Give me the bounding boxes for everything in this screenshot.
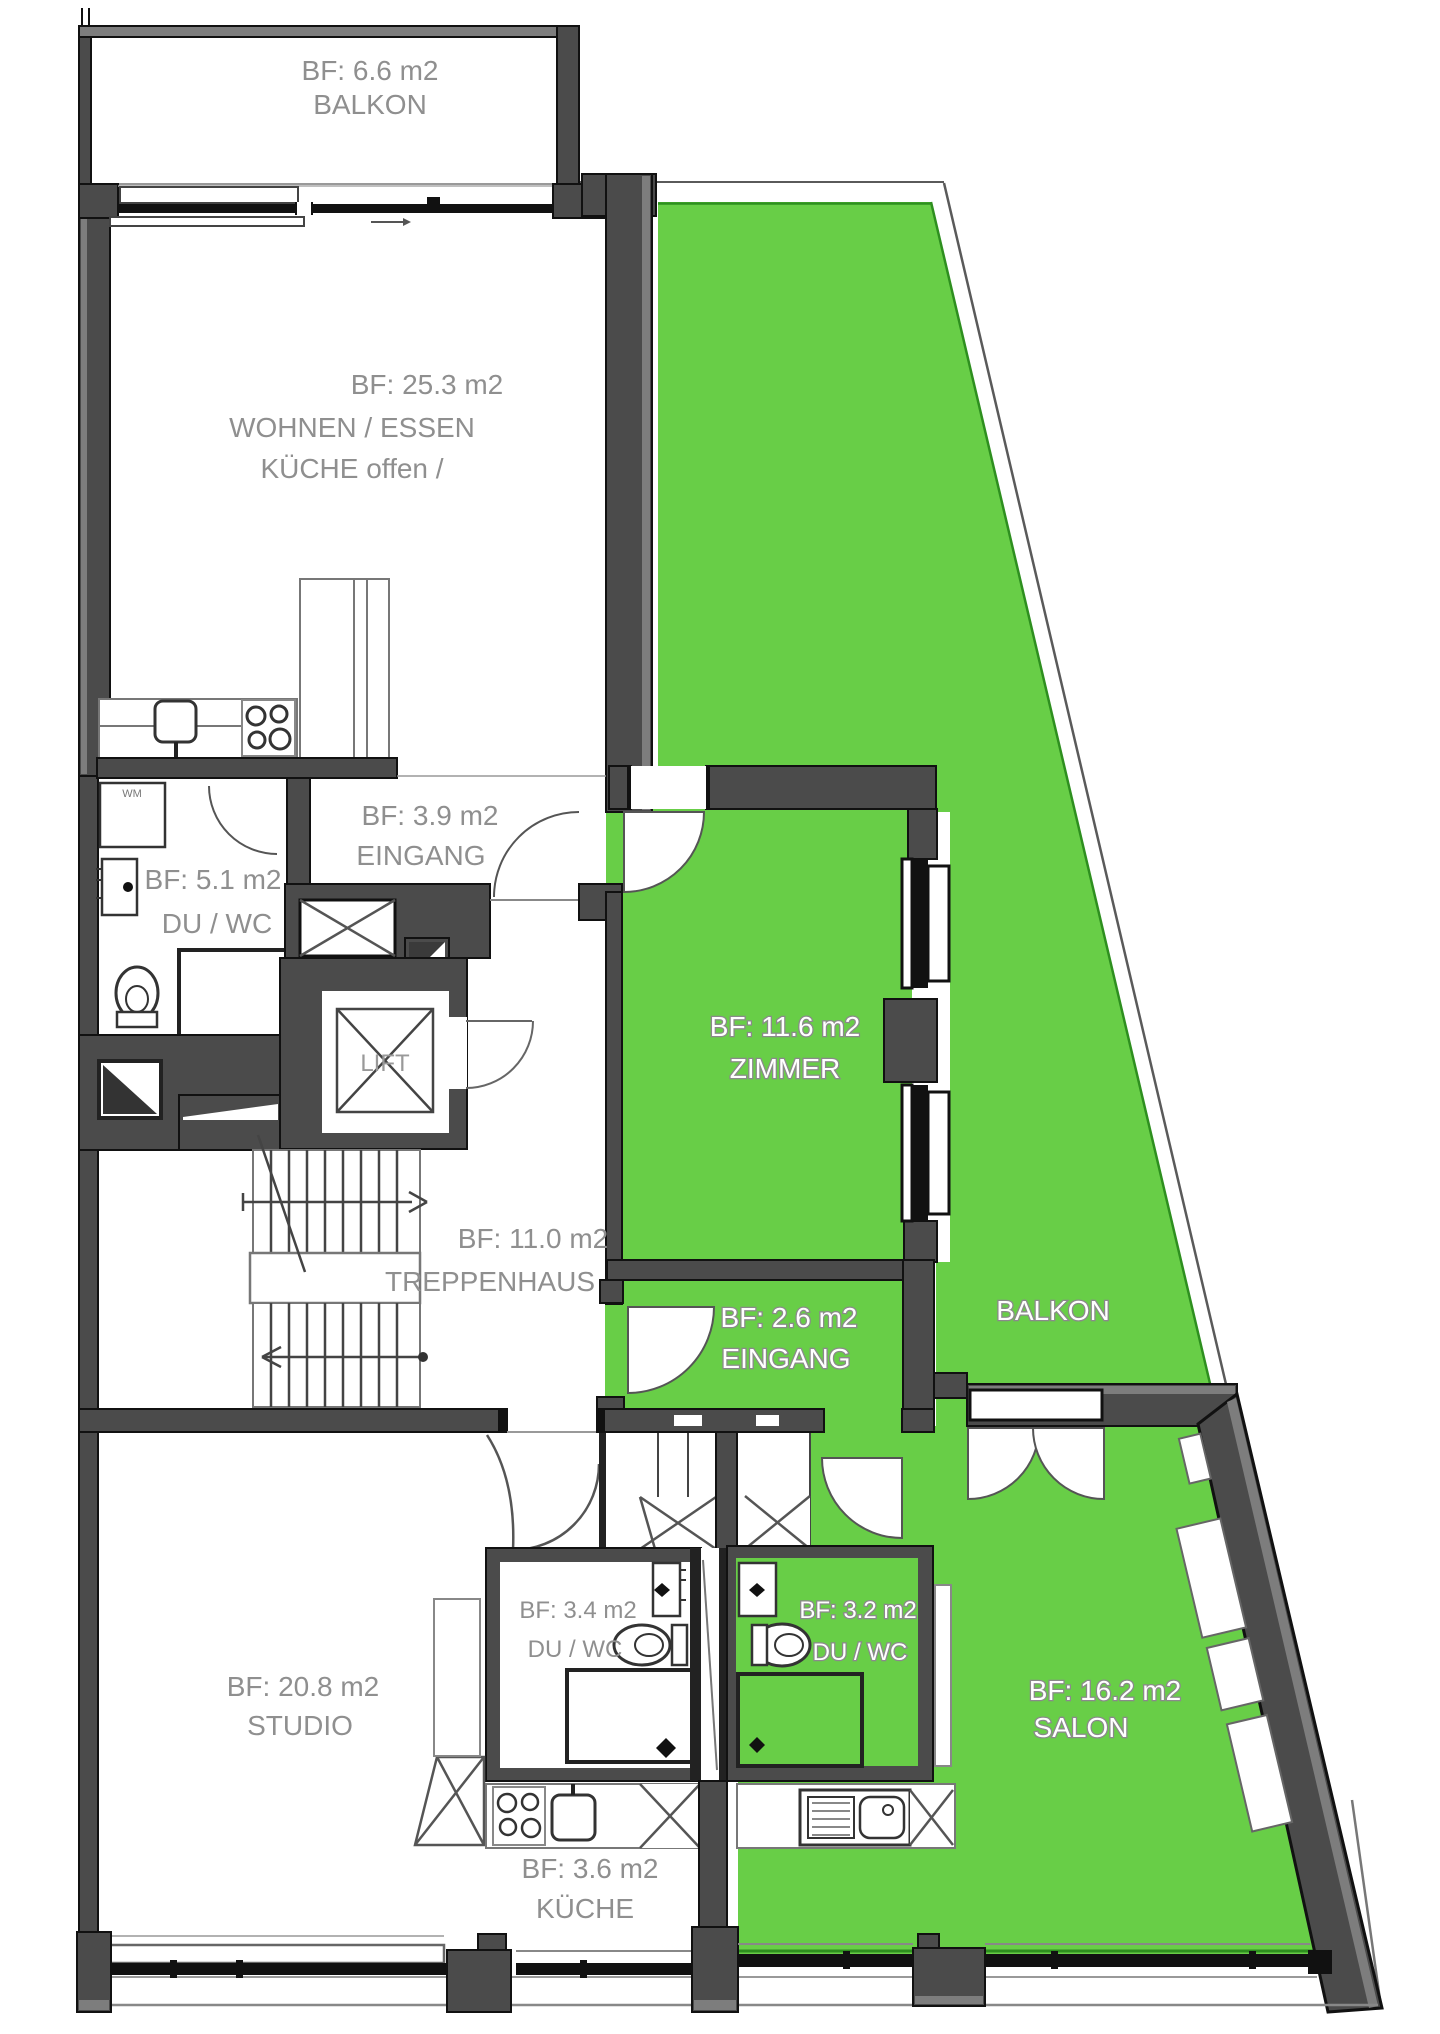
svg-text:BF: 11.0 m2: BF: 11.0 m2: [458, 1223, 608, 1254]
svg-text:BF: 2.6 m2: BF: 2.6 m2: [721, 1302, 858, 1333]
svg-text:BF: 20.8 m2: BF: 20.8 m2: [227, 1671, 380, 1702]
svg-text:SALON: SALON: [1034, 1712, 1129, 1743]
svg-text:BF: 25.3 m2: BF: 25.3 m2: [351, 369, 504, 400]
svg-text:ZIMMER: ZIMMER: [730, 1053, 840, 1084]
svg-text:DU / WC: DU / WC: [162, 908, 272, 939]
svg-text:EINGANG: EINGANG: [721, 1343, 850, 1374]
svg-text:BF: 3.9 m2: BF: 3.9 m2: [362, 800, 499, 831]
svg-text:WOHNEN / ESSEN: WOHNEN / ESSEN: [229, 412, 475, 443]
svg-text:BF: 6.6 m2: BF: 6.6 m2: [302, 55, 439, 86]
svg-text:BF: 3.4 m2: BF: 3.4 m2: [519, 1597, 636, 1624]
svg-text:DU / WC: DU / WC: [813, 1639, 908, 1666]
svg-text:BF: 16.2 m2: BF: 16.2 m2: [1029, 1675, 1182, 1706]
svg-text:LIFT: LIFT: [360, 1050, 410, 1077]
svg-text:KÜCHE: KÜCHE: [536, 1893, 634, 1924]
svg-text:BF: 3.2 m2: BF: 3.2 m2: [799, 1597, 916, 1624]
svg-text:DU / WC: DU / WC: [528, 1636, 623, 1663]
svg-text:EINGANG: EINGANG: [356, 840, 485, 871]
svg-text:BALKON: BALKON: [996, 1295, 1110, 1326]
svg-text:KÜCHE offen /: KÜCHE offen /: [260, 453, 443, 484]
svg-text:TREPPENHAUS: TREPPENHAUS: [385, 1266, 595, 1297]
svg-text:WM: WM: [122, 788, 142, 800]
svg-text:BF: 5.1 m2: BF: 5.1 m2: [145, 864, 282, 895]
svg-text:BALKON: BALKON: [313, 89, 427, 120]
svg-text:STUDIO: STUDIO: [247, 1710, 353, 1741]
svg-text:BF: 3.6 m2: BF: 3.6 m2: [522, 1853, 659, 1884]
svg-text:BF: 11.6 m2: BF: 11.6 m2: [710, 1011, 860, 1042]
